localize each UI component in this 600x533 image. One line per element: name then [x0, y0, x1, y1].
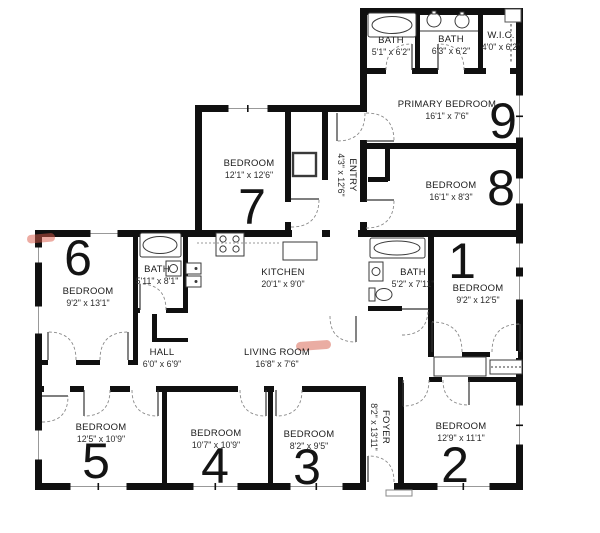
stove-icon: [216, 233, 244, 256]
room-label-living-room: LIVING ROOM 16'8" x 7'6": [244, 347, 310, 371]
front-step-icon: [386, 490, 412, 496]
room-name: BATH: [432, 34, 470, 46]
room-label-bath-a: BATH 5'1" x 6'2": [372, 35, 410, 59]
room-dims: 9'2" x 13'1": [63, 298, 114, 309]
window-bedroom1-right-lower: [516, 275, 524, 302]
kitchen-island-icon: [283, 242, 317, 260]
room-name: KITCHEN: [261, 267, 304, 279]
room-label-wic: W.I.C. 4'0" x 6'2": [482, 30, 520, 54]
room-name: BATH: [372, 35, 410, 47]
window-top-left-wall: [89, 230, 120, 238]
room-label-bedroom-8: BEDROOM 16'1" x 8'3": [426, 180, 477, 204]
room-dims: 16'1" x 8'3": [426, 192, 477, 203]
room-name: HALL: [143, 347, 181, 359]
bathtub-top-icon: [368, 13, 416, 37]
room-number-6: 6: [64, 229, 92, 287]
room-dims: 5'1" x 6'2": [372, 47, 410, 58]
room-dims: 16'8" x 7'6": [244, 359, 310, 370]
window-bedroom1-right-upper: [516, 242, 524, 270]
room-dims: 4'0" x 6'2": [482, 42, 520, 53]
room-name: W.I.C.: [482, 30, 520, 42]
closet-rod-box-icon: [490, 360, 522, 374]
room-name: BEDROOM: [224, 158, 275, 170]
window-bedroom5-left: [35, 429, 43, 462]
window-bedroom6-left-upper: [35, 246, 43, 265]
room-number-2: 2: [441, 436, 469, 494]
room-dims: 5'2" x 7'11": [392, 279, 435, 290]
room-number-3: 3: [293, 438, 321, 496]
kitchen-counter-appliances-icon: [186, 263, 201, 287]
room-name: BATH: [136, 264, 179, 276]
room-number-8: 8: [487, 159, 515, 217]
room-dims: 9'2" x 12'5": [453, 295, 504, 306]
room-name: BEDROOM: [426, 180, 477, 192]
room-dims: 6'3" x 6'2": [432, 46, 470, 57]
room-label-entry: ENTRY 4'3" x 12'6": [334, 153, 358, 196]
room-dims: 20'1" x 9'0": [261, 279, 304, 290]
room-name: PRIMARY BEDROOM: [398, 99, 496, 111]
room-name: FOYER: [379, 403, 391, 451]
toilet-icon: [369, 288, 392, 301]
room-dims: 5'11" x 8'1": [136, 276, 179, 287]
sink-right-icon: [369, 262, 383, 281]
room-dims: 16'1" x 7'6": [398, 111, 496, 122]
room-label-bath-b: BATH 6'3" x 6'2": [432, 34, 470, 58]
highlight-mark-left-wall: [27, 233, 56, 244]
room-dims: 8'2" x 13'11": [367, 403, 378, 451]
window-bedroom6-left-lower: [35, 305, 43, 336]
room-dims: 4'3" x 12'6": [334, 153, 345, 196]
room-name: ENTRY: [346, 153, 358, 196]
room-number-9: 9: [489, 92, 517, 150]
room-label-primary-bedroom: PRIMARY BEDROOM 16'1" x 7'6": [398, 99, 496, 123]
utility-closet-icon: [293, 153, 316, 176]
room-number-1: 1: [448, 232, 476, 290]
window-bedroom7-top: [227, 105, 270, 113]
floor-plan: BATH 5'1" x 6'2" BATH 6'3" x 6'2" W.I.C.…: [0, 0, 600, 533]
room-label-hall: HALL 6'0" x 6'9": [143, 347, 181, 371]
room-name: BEDROOM: [436, 421, 487, 433]
room-number-7: 7: [238, 178, 266, 236]
room-number-4: 4: [201, 437, 229, 495]
room-name: BEDROOM: [63, 286, 114, 298]
bathtub-right-icon: [370, 238, 425, 258]
room-label-bath-right: BATH 5'2" x 7'11": [392, 267, 435, 291]
room-label-bedroom-6: BEDROOM 9'2" x 13'1": [63, 286, 114, 310]
room-label-foyer: FOYER 8'2" x 13'11": [367, 403, 391, 451]
bathtub-left-icon: [140, 233, 181, 257]
closet-box-icon: [434, 357, 486, 376]
exterior-unit-icon: [505, 9, 521, 22]
room-number-5: 5: [82, 432, 110, 490]
window-bedroom2-right: [516, 404, 524, 447]
room-name: BATH: [392, 267, 435, 279]
window-bedroom8-right: [516, 177, 524, 206]
room-label-bath-left: BATH 5'11" x 8'1": [136, 264, 179, 288]
room-name: LIVING ROOM: [244, 347, 310, 359]
room-dims: 6'0" x 6'9": [143, 359, 181, 370]
room-label-kitchen: KITCHEN 20'1" x 9'0": [261, 267, 304, 291]
